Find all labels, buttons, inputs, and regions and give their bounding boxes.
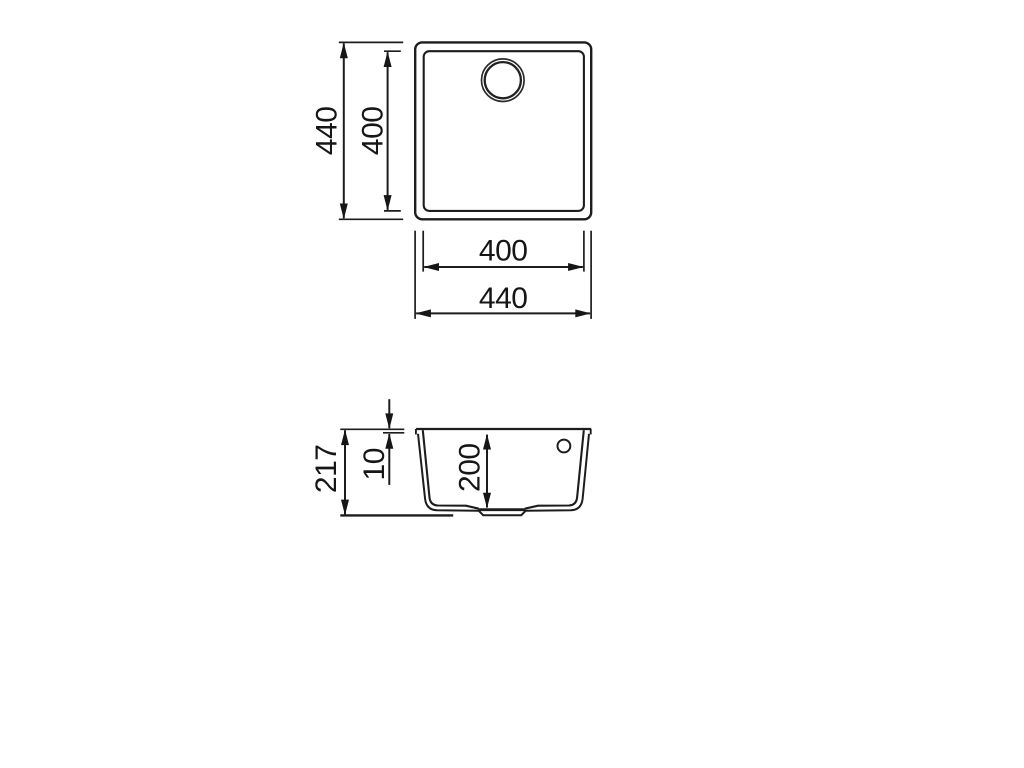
svg-text:10: 10 bbox=[358, 448, 391, 480]
svg-text:440: 440 bbox=[311, 107, 344, 156]
svg-text:440: 440 bbox=[479, 282, 528, 315]
svg-text:400: 400 bbox=[479, 234, 528, 267]
svg-text:217: 217 bbox=[310, 445, 343, 494]
svg-text:400: 400 bbox=[356, 107, 389, 156]
svg-text:200: 200 bbox=[453, 443, 486, 492]
